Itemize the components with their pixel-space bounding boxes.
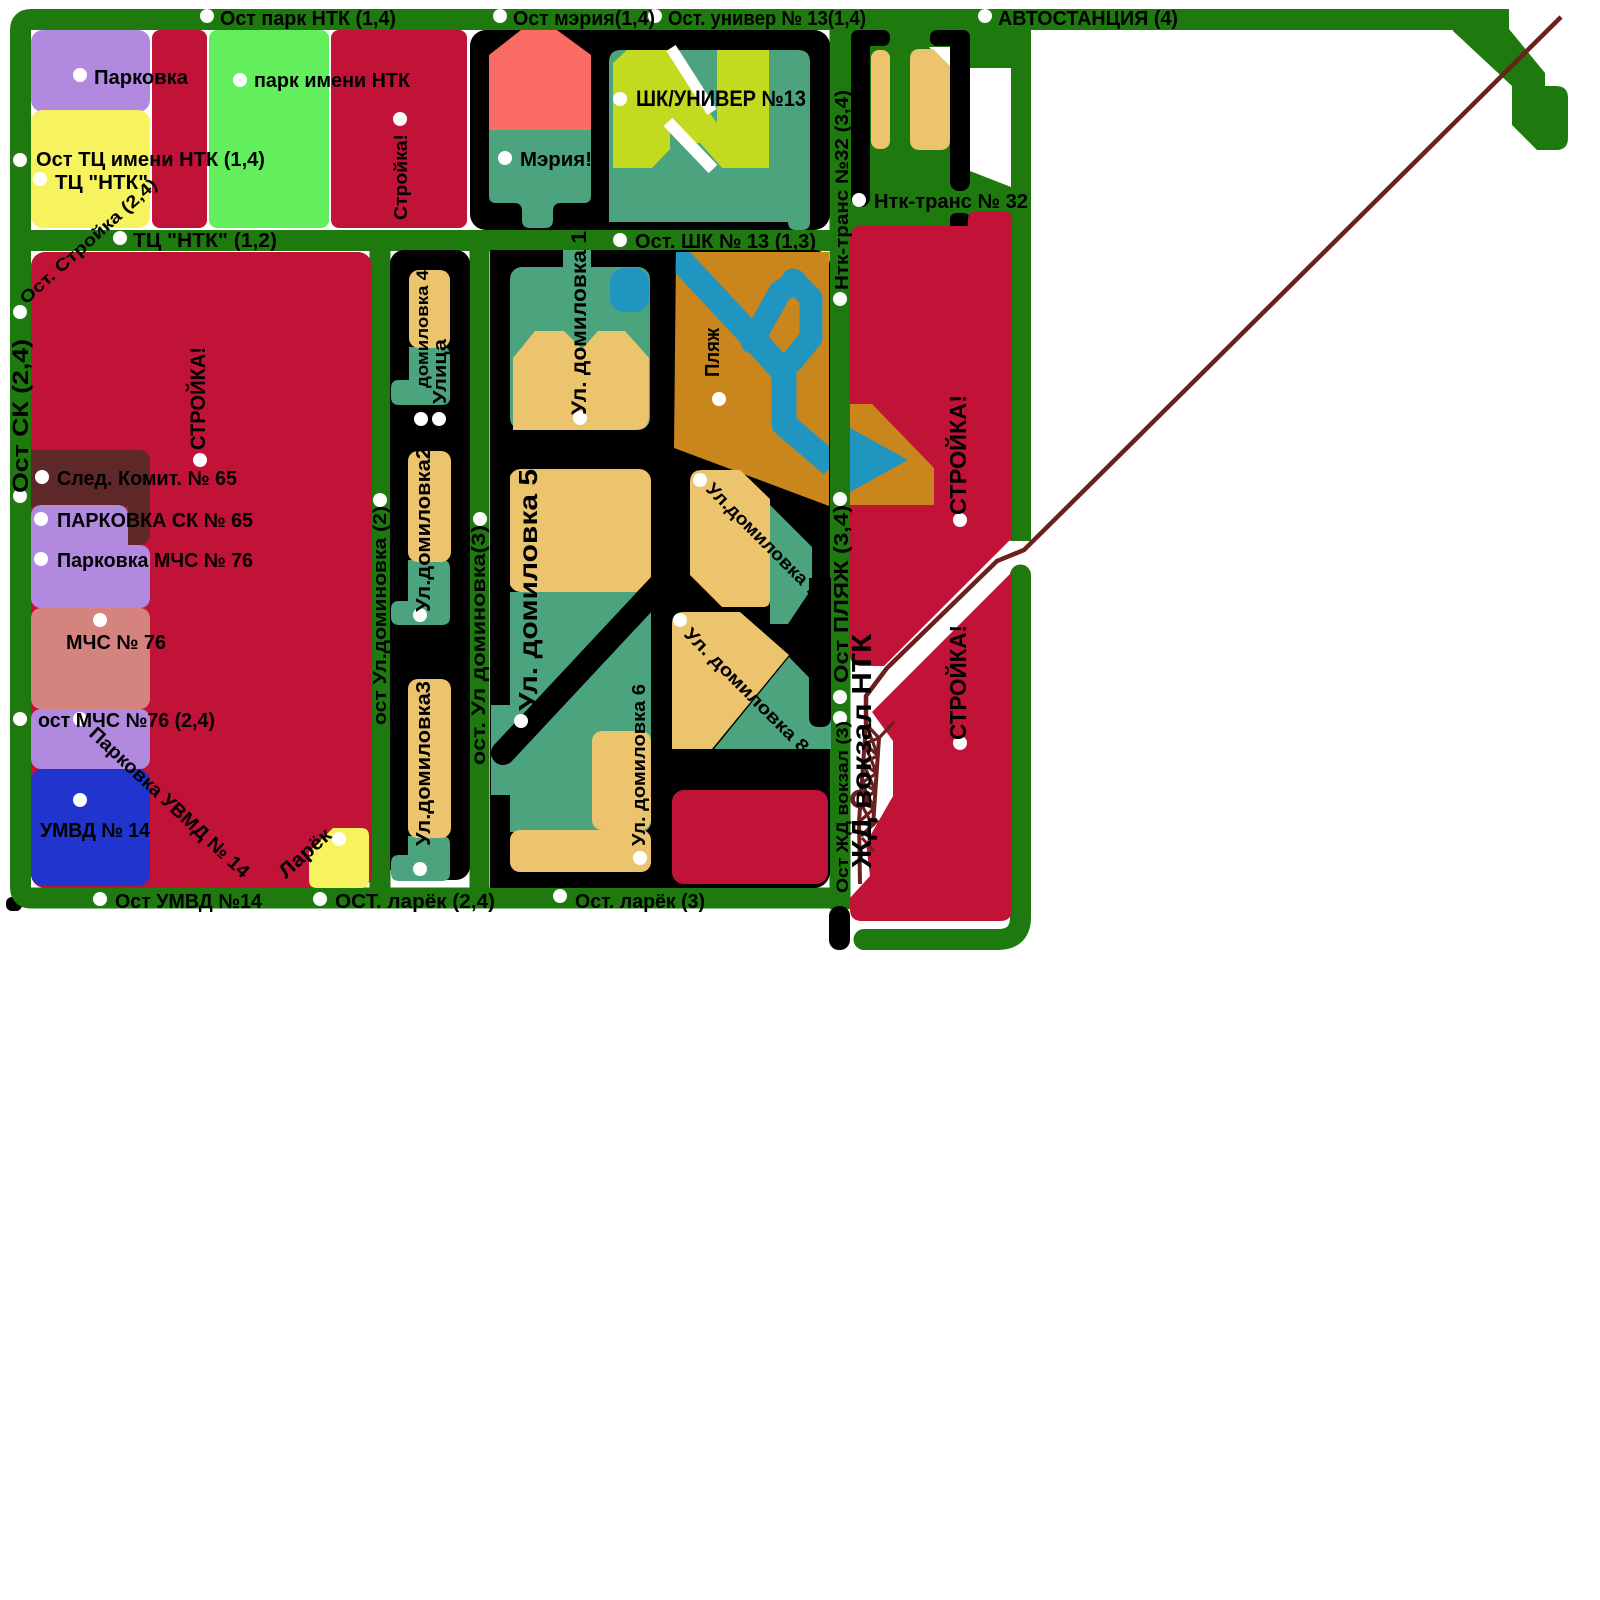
svg-text:Ул.домиловка3: Ул.домиловка3 [413, 681, 435, 846]
svg-text:Стройка!: Стройка! [391, 134, 411, 220]
svg-text:Улица: Улица [430, 338, 450, 404]
svg-text:СТРОЙКА!: СТРОЙКА! [944, 395, 971, 515]
svg-text:Пляж: Пляж [702, 327, 724, 377]
svg-text:Ост СК (2,4): Ост СК (2,4) [8, 339, 33, 493]
svg-text:Мэрия!: Мэрия! [520, 149, 592, 171]
svg-text:Ост ТЦ имени НТК (1,4): Ост ТЦ имени НТК (1,4) [36, 149, 265, 171]
svg-text:ост. Ул доминовка(3): ост. Ул доминовка(3) [469, 525, 490, 765]
svg-text:Ост. ларёк (3): Ост. ларёк (3) [575, 891, 705, 913]
svg-text:ПАРКОВКА СК № 65: ПАРКОВКА СК № 65 [57, 510, 253, 532]
svg-text:Ул. домиловка 5: Ул. домиловка 5 [513, 469, 543, 711]
svg-text:ост Ул.доминовка (2): ост Ул.доминовка (2) [370, 506, 390, 725]
svg-text:Парковка: Парковка [94, 67, 189, 89]
svg-text:Ост УМВД №14: Ост УМВД №14 [115, 891, 263, 913]
svg-text:Ост парк НТК (1,4): Ост парк НТК (1,4) [220, 8, 396, 30]
svg-text:Ост. универ № 13(1,4): Ост. универ № 13(1,4) [668, 8, 866, 30]
svg-text:СТРОЙКА!: СТРОЙКА! [944, 625, 971, 740]
svg-text:ШК/УНИВЕР №13: ШК/УНИВЕР №13 [636, 86, 806, 111]
svg-text:МЧС № 76: МЧС № 76 [66, 632, 166, 654]
svg-text:УМВД № 14: УМВД № 14 [40, 820, 151, 842]
svg-text:АВТОСТАНЦИЯ (4): АВТОСТАНЦИЯ (4) [998, 8, 1178, 30]
svg-text:ЖД вокзал НТК: ЖД вокзал НТК [846, 633, 877, 869]
svg-text:Ул. домиловка 6: Ул. домиловка 6 [629, 684, 649, 846]
svg-text:Ост. ШК № 13 (1,3): Ост. ШК № 13 (1,3) [635, 231, 816, 253]
svg-text:Нтк-транс №32 (3,4): Нтк-транс №32 (3,4) [832, 90, 852, 290]
svg-text:ост МЧС №76 (2,4): ост МЧС №76 (2,4) [38, 710, 215, 732]
svg-text:След. Комит. № 65: След. Комит. № 65 [57, 468, 237, 490]
svg-text:ТЦ "НТК" (1,2): ТЦ "НТК" (1,2) [133, 230, 277, 252]
svg-text:Ул.домиловка2: Ул.домиловка2 [413, 447, 435, 612]
svg-text:Ул. домиловка 1: Ул. домиловка 1 [568, 231, 591, 415]
svg-text:парк имени НТК: парк имени НТК [254, 70, 411, 92]
svg-text:Парковка МЧС № 76: Парковка МЧС № 76 [57, 550, 253, 572]
svg-text:Ост мэрия(1,4): Ост мэрия(1,4) [513, 8, 655, 30]
svg-text:Нтк-транс № 32: Нтк-транс № 32 [874, 191, 1028, 213]
svg-text:СТРОЙКА!: СТРОЙКА! [186, 347, 210, 450]
svg-text:ОСТ. ларёк (2,4): ОСТ. ларёк (2,4) [335, 891, 495, 913]
